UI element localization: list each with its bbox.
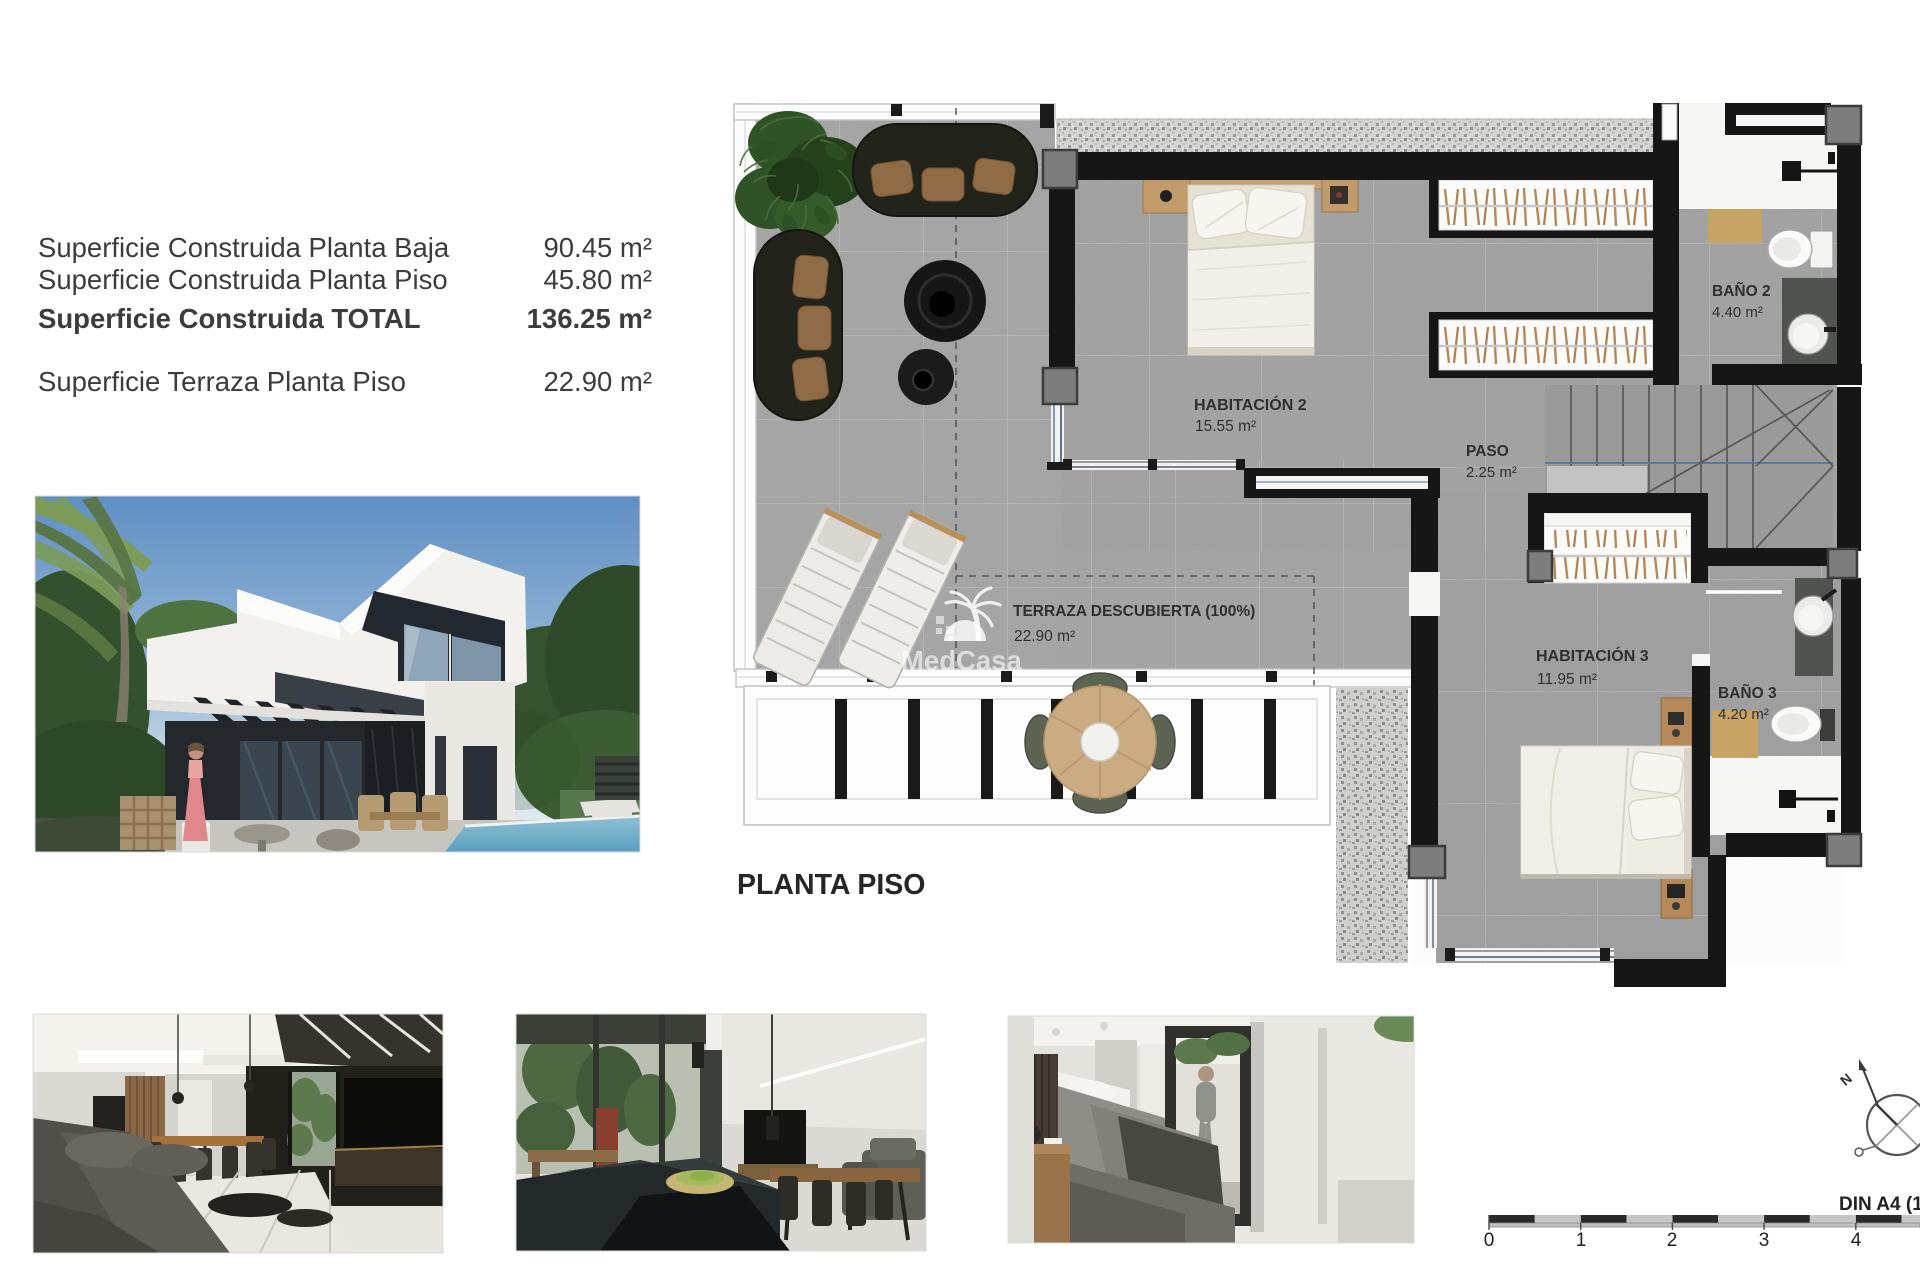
svg-text:Superficie Construida Planta B: Superficie Construida Planta Baja <box>38 232 450 263</box>
svg-text:3: 3 <box>1759 1230 1770 1251</box>
svg-text:Superficie Terraza Planta Piso: Superficie Terraza Planta Piso <box>38 366 406 397</box>
svg-text:PLANTA PISO: PLANTA PISO <box>737 869 925 901</box>
svg-text:4.40 m²: 4.40 m² <box>1712 304 1763 321</box>
svg-text:22.90 m²: 22.90 m² <box>543 366 652 397</box>
svg-text:Superficie Construida Planta P: Superficie Construida Planta Piso <box>38 264 448 295</box>
svg-text:BAÑO 3: BAÑO 3 <box>1718 684 1777 702</box>
svg-text:HABITACIÓN 3: HABITACIÓN 3 <box>1536 646 1649 665</box>
svg-text:Superficie Construida TOTAL: Superficie Construida TOTAL <box>38 303 421 334</box>
svg-text:4: 4 <box>1851 1230 1862 1251</box>
svg-text:2.25 m²: 2.25 m² <box>1466 464 1517 481</box>
svg-text:0: 0 <box>1484 1230 1495 1251</box>
svg-text:22.90 m²: 22.90 m² <box>1014 628 1075 645</box>
svg-text:2: 2 <box>1667 1230 1678 1251</box>
svg-text:MedCasa: MedCasa <box>901 645 1022 676</box>
svg-text:136.25 m²: 136.25 m² <box>527 303 652 334</box>
svg-text:90.45 m²: 90.45 m² <box>543 232 652 263</box>
svg-text:15.55 m²: 15.55 m² <box>1195 418 1256 435</box>
svg-text:HABITACIÓN 2: HABITACIÓN 2 <box>1194 395 1307 414</box>
svg-text:45.80 m²: 45.80 m² <box>543 264 652 295</box>
svg-text:1: 1 <box>1576 1230 1587 1251</box>
svg-text:DIN A4 (1,: DIN A4 (1, <box>1839 1194 1920 1215</box>
svg-text:4.20 m²: 4.20 m² <box>1718 706 1769 723</box>
svg-text:BAÑO 2: BAÑO 2 <box>1712 282 1771 300</box>
svg-text:PASO: PASO <box>1466 443 1509 460</box>
svg-text:TERRAZA DESCUBIERTA (100%): TERRAZA DESCUBIERTA (100%) <box>1013 603 1255 620</box>
svg-text:11.95 m²: 11.95 m² <box>1537 671 1597 688</box>
